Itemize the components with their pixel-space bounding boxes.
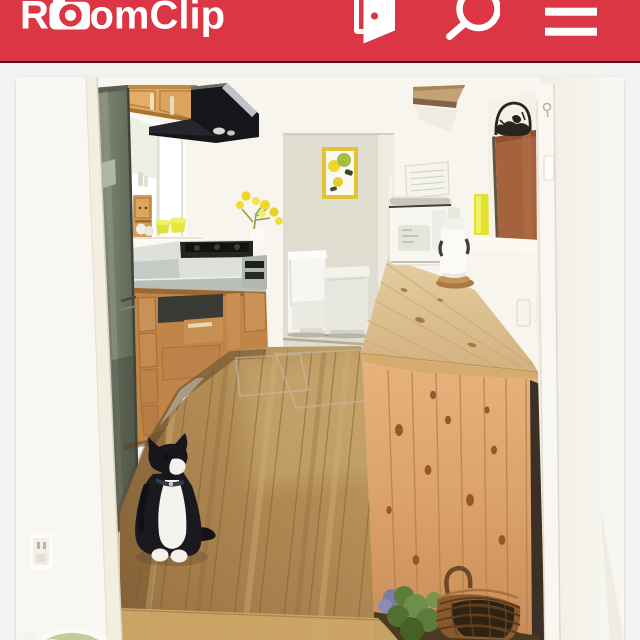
svg-text:R: R	[20, 0, 49, 38]
svg-text:omClip: omClip	[90, 0, 226, 38]
